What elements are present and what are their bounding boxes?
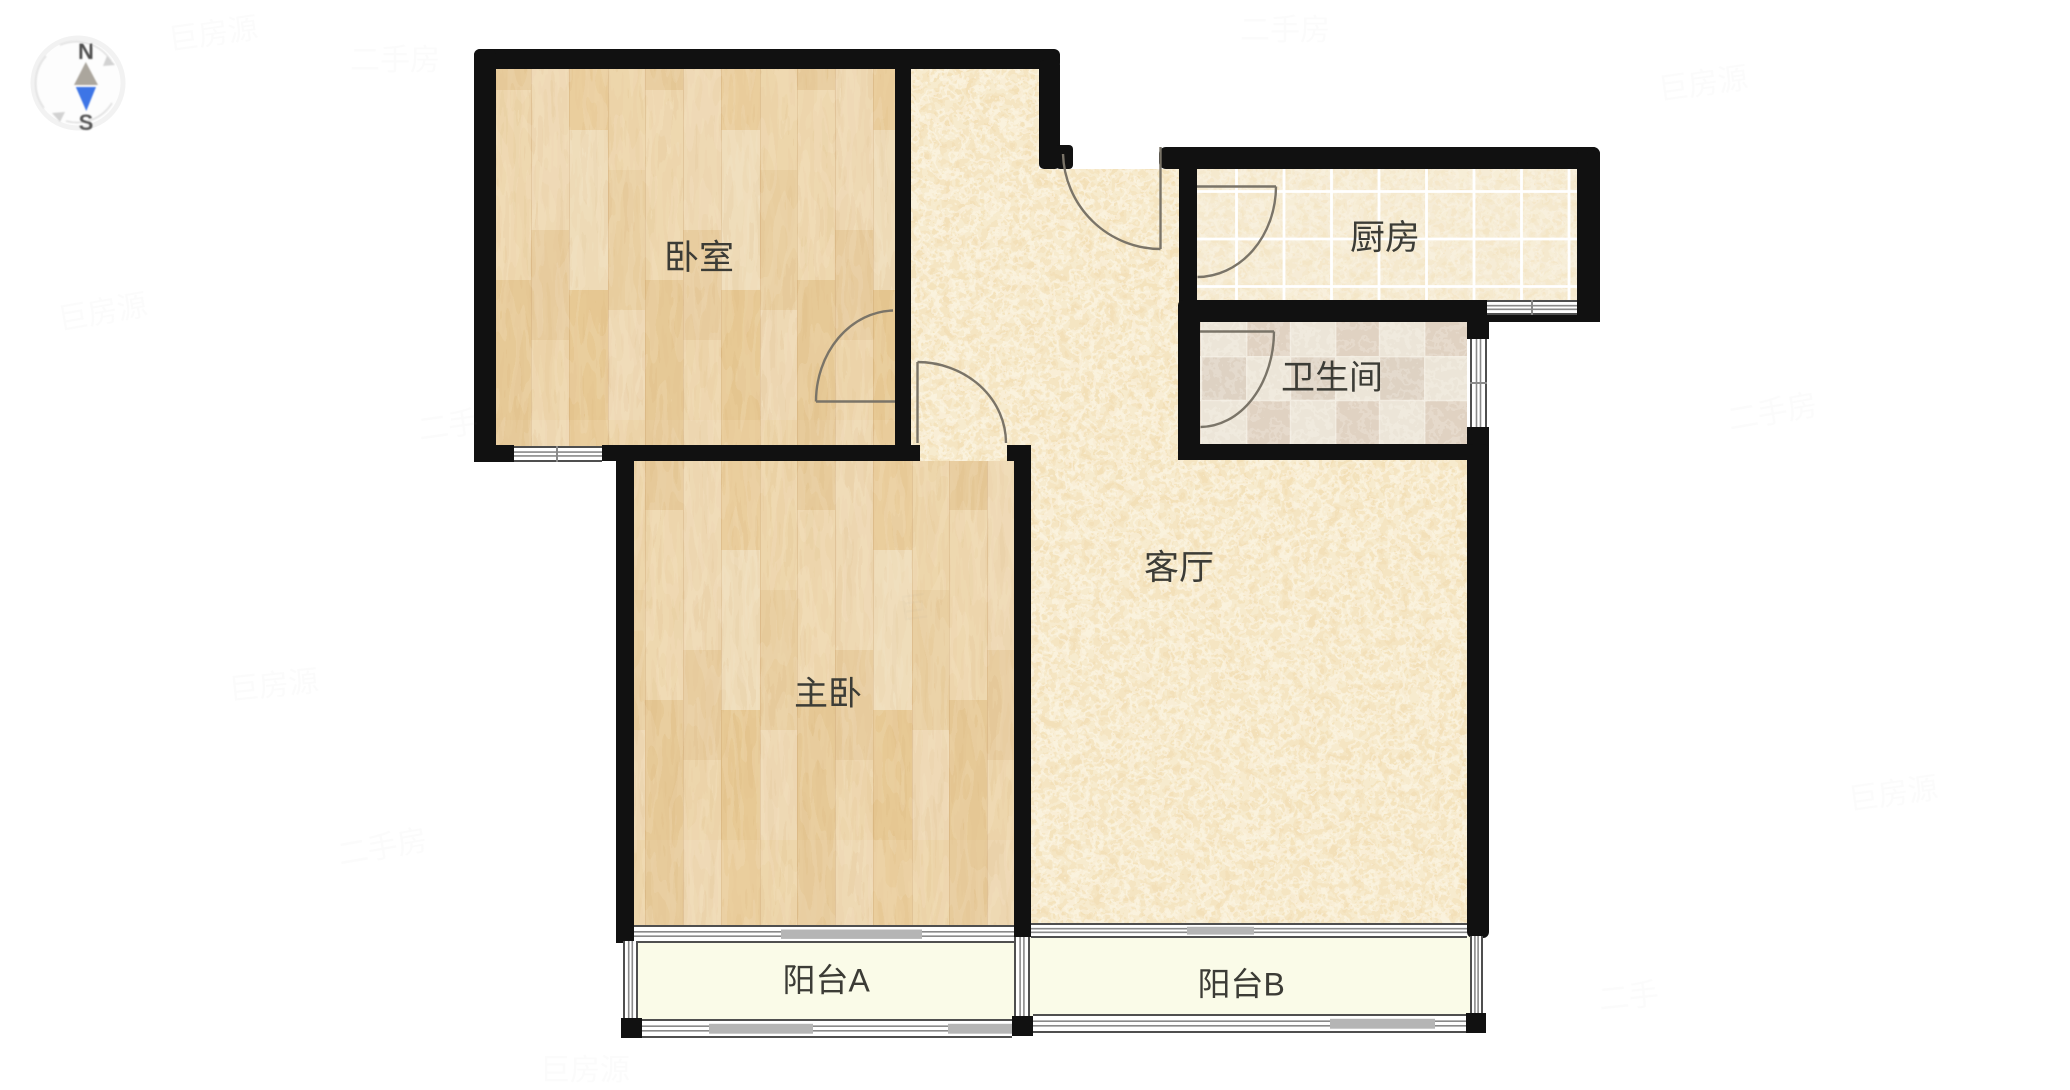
svg-text:A: A: [849, 963, 871, 999]
svg-text:巨: 巨: [896, 590, 930, 627]
svg-text:巨房源: 巨房源: [540, 1054, 630, 1087]
svg-text:二手: 二手: [1597, 978, 1660, 1017]
svg-text:N: N: [78, 39, 94, 64]
svg-text:B: B: [1264, 967, 1285, 1003]
svg-text:二手房: 二手房: [350, 44, 440, 77]
svg-text:二手房: 二手房: [1240, 14, 1330, 47]
svg-text:S: S: [79, 110, 94, 135]
